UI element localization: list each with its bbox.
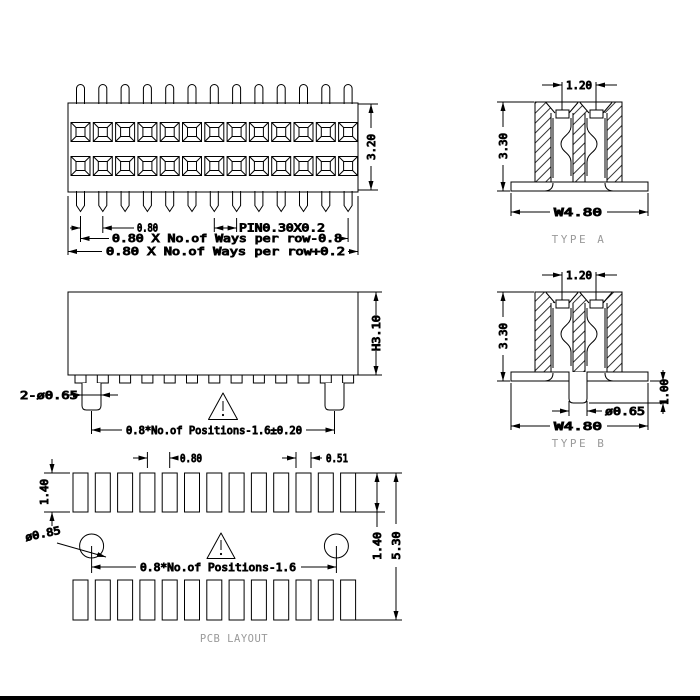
dimension-width: W4.80 (511, 193, 648, 219)
locating-peg-left (82, 383, 101, 410)
smt-lead-left (511, 372, 569, 381)
smt-lead-right (587, 372, 648, 381)
dimension-peg-dia: 2-ø0.65 (20, 390, 118, 402)
smt-leads (511, 182, 648, 191)
dim-w4-80-label: W4.80 (554, 421, 602, 433)
locating-peg-right (325, 383, 344, 410)
dimension-hole-dia: ø0.85 (24, 525, 106, 557)
housing-outline (68, 292, 358, 375)
connector-engineering-drawing: 0.80 PIN0.30X0.2 0.80 X No.of Ways per r… (0, 0, 700, 700)
type-b-section: 1.20 3.30 1.00 ø0.65 W4. (497, 270, 671, 450)
dim-1-20-label: 1.20 (566, 270, 592, 282)
warning-triangle-icon (209, 393, 238, 420)
front-view: 2-ø0.65 H3.10 0.8*No.of Positions-1.6±0.… (20, 292, 383, 437)
pcb-layout-title: PCB LAYOUT (200, 633, 268, 645)
dim-3-20-label: 3.20 (366, 134, 378, 160)
dimension-height: 3.30 (497, 102, 534, 191)
bottom-border-bar (0, 696, 700, 700)
dim-1-20-label: 1.20 (566, 80, 592, 92)
dim-0-80-label: 0.80 (180, 453, 202, 465)
dim-1-40-left-label: 1.40 (39, 479, 51, 505)
dimension-body-width-3-20: 3.20 (358, 104, 378, 190)
dim-3-30-label: 3.30 (498, 133, 510, 159)
dim-2-peg-label: 2-ø0.65 (20, 390, 78, 402)
dimension-pad-width: 0.51 (282, 452, 348, 468)
dim-1-40-right-label: 1.40 (372, 532, 384, 560)
dimension-pad-height-left: 1.40 (39, 459, 70, 526)
dim-w4-80-label: W4.80 (554, 207, 602, 219)
dim-0-51-label: 0.51 (326, 453, 348, 465)
housing-hatched-body (535, 102, 622, 182)
housing-hatched-body (535, 292, 622, 372)
dim-1-00-label: 1.00 (659, 379, 671, 405)
dimension-peg-dia: ø0.65 (552, 401, 645, 418)
dim-pcb-span-label: 0.8*No.of Positions-1.6 (140, 562, 296, 574)
dim-ways-minus-label: 0.80 X No.of Ways per row-0.8 (112, 233, 342, 245)
pcb-layout-view: 0.80 0.51 1.40 ø0.85 0.8*No.of Positions… (24, 452, 403, 645)
dim-3-30-label: 3.30 (498, 323, 510, 349)
dim-span-label: 0.8*No.of Positions-1.6±0.20 (126, 425, 302, 437)
type-a-section: 1.20 3.30 W4.80 TYPE A (497, 80, 648, 246)
technical-drawing-page: 0.80 PIN0.30X0.2 0.80 X No.of Ways per r… (0, 0, 700, 700)
dim-peg-dia-label: ø0.65 (605, 406, 645, 418)
dim-h3-10-label: H3.10 (371, 315, 383, 351)
dimension-hole-span: 0.8*No.of Positions-1.6 (92, 562, 337, 574)
top-plan-view: 0.80 PIN0.30X0.2 0.80 X No.of Ways per r… (68, 85, 378, 259)
warning-triangle-icon (207, 533, 235, 559)
dimension-body-height: H3.10 (358, 292, 383, 375)
smt-feet (75, 375, 354, 383)
solder-pads (73, 473, 356, 620)
type-a-title: TYPE A (552, 233, 607, 246)
center-peg (569, 372, 587, 403)
type-b-title: TYPE B (552, 437, 607, 450)
dimension-row-offset: 1.40 (355, 473, 385, 560)
housing-outline (68, 103, 358, 192)
dim-5-30-label: 5.30 (391, 532, 403, 560)
dimension-positions-span: 0.8*No.of Positions-1.6±0.20 (92, 411, 335, 437)
dimension-height: 3.30 (497, 292, 534, 381)
dim-ways-plus-label: 0.80 X No.of Ways per row+0.2 (106, 246, 345, 258)
dimension-pad-pitch: 0.80 (133, 452, 202, 468)
dim-hole-dia-label: ø0.85 (24, 525, 62, 544)
